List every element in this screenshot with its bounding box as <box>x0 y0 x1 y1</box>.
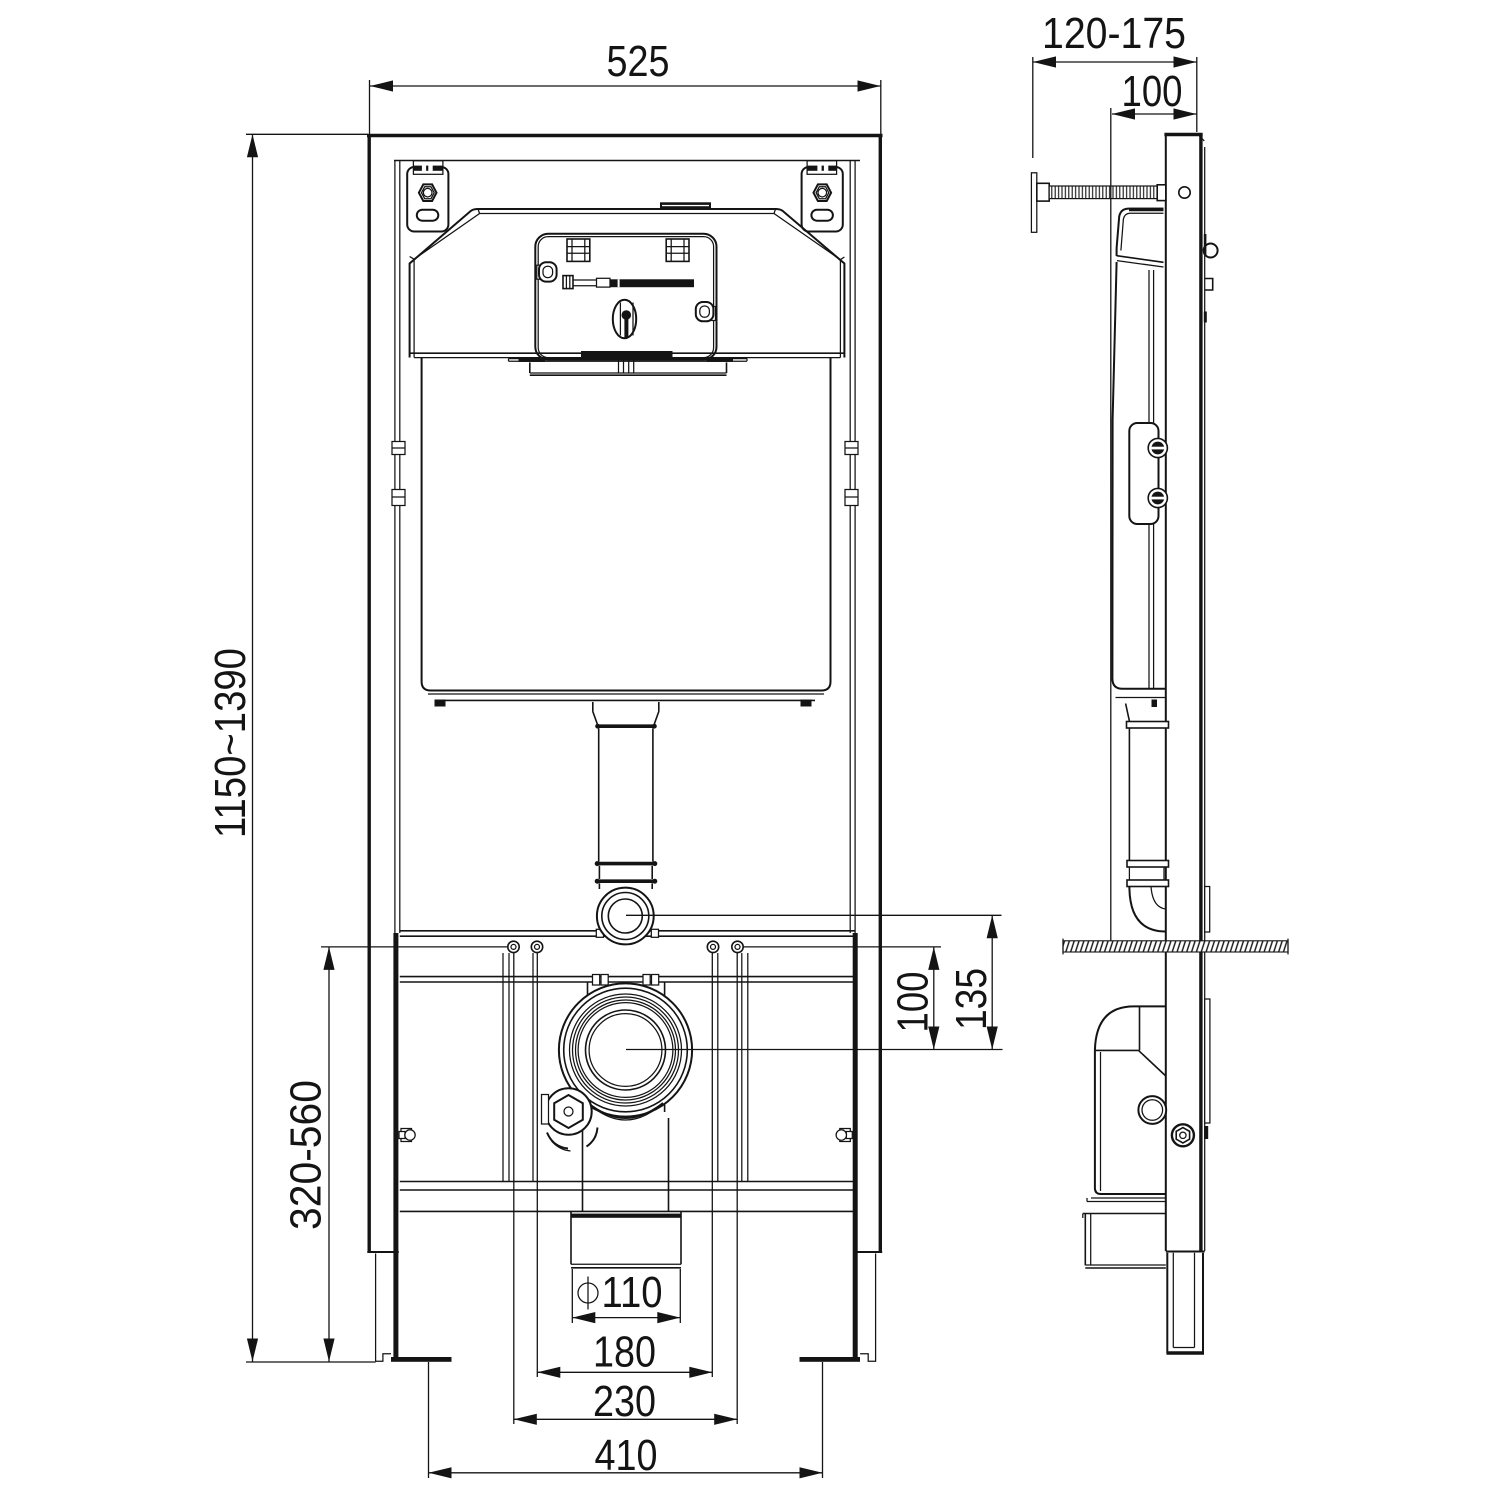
svg-text:320-560: 320-560 <box>282 1080 331 1230</box>
svg-text:135: 135 <box>947 968 996 1030</box>
svg-text:410: 410 <box>595 1431 658 1480</box>
svg-text:230: 230 <box>593 1377 656 1426</box>
svg-text:1150~1390: 1150~1390 <box>206 648 255 838</box>
svg-text:120-175: 120-175 <box>1042 9 1186 58</box>
svg-text:110: 110 <box>602 1268 663 1317</box>
svg-text:100: 100 <box>889 972 938 1033</box>
svg-text:180: 180 <box>593 1328 656 1377</box>
svg-text:100: 100 <box>1122 67 1183 116</box>
svg-text:525: 525 <box>607 37 670 86</box>
